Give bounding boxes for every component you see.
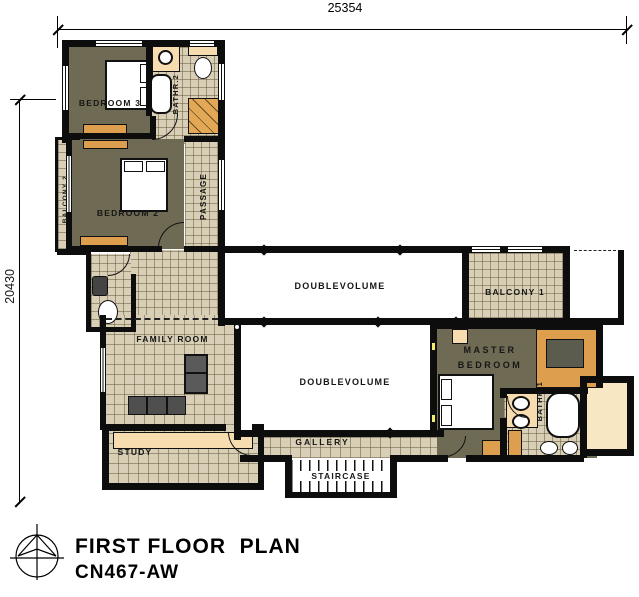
room-label-study: STUDY (100, 447, 170, 457)
linen-cupboard-icon (508, 430, 522, 456)
window-icon (219, 64, 224, 100)
room-label-balcony2-text: BALCONY 2 (62, 175, 69, 223)
room-label-passage-text: PASSAGE (199, 173, 208, 220)
door-knob-icon (234, 324, 240, 330)
sofa-icon (128, 396, 186, 415)
shower-icon (188, 98, 220, 134)
wall-segment (466, 455, 506, 462)
wall-segment (627, 376, 634, 456)
wall-segment (563, 246, 570, 320)
window-icon (96, 41, 142, 46)
pillow-icon (124, 161, 143, 172)
closet-icon (452, 329, 468, 344)
plan-code: CN467-AW (75, 562, 179, 584)
wall-segment (462, 246, 469, 320)
room-label-bathr1: BATHR.1 (532, 372, 546, 430)
wall-segment (580, 376, 634, 383)
room-label-staircase: STAIRCASE (298, 471, 384, 481)
dimension-extension (10, 99, 56, 100)
dimension-line-left (19, 99, 20, 503)
window-icon (472, 247, 500, 252)
fireplace-icon (184, 354, 208, 394)
room-label-bathr2: BATHR.2 (168, 58, 182, 130)
dimension-top-value: 25354 (305, 1, 385, 15)
wall-segment (580, 382, 587, 458)
balcony-rail (55, 137, 80, 140)
room-label-master-line2: BEDROOM (440, 360, 540, 370)
wc-basin-icon (92, 276, 108, 296)
north-arrow-compass-icon (8, 522, 66, 582)
wall-segment (86, 252, 91, 332)
pillow-icon (441, 405, 452, 426)
pillow-icon (441, 379, 452, 400)
balcony1-floor (466, 253, 566, 318)
dimension-left-text: 20430 (3, 269, 17, 304)
wall-segment (86, 327, 136, 332)
toilet-icon (540, 441, 558, 455)
wardrobe-icon (83, 140, 128, 149)
wardrobe-inset (546, 339, 584, 368)
fireplace-divider (186, 372, 206, 374)
sofa-seat-line (166, 397, 168, 414)
wall-segment (258, 424, 264, 490)
room-label-passage: PASSAGE (196, 156, 210, 236)
bathtub-icon (546, 392, 580, 438)
sofa-seat-line (146, 397, 148, 414)
open-area-floor (570, 252, 618, 318)
open-edge-dashed (106, 318, 218, 320)
room-label-balcony2: BALCONY 2 (57, 160, 73, 238)
room-label-double-volume-lower: DOUBLEVOLUME (265, 377, 425, 387)
toilet-icon (194, 57, 212, 79)
wall-segment (285, 492, 397, 498)
plan-title: FIRST FLOOR PLAN (75, 535, 301, 559)
room-label-bedroom3: BEDROOM 3 (68, 98, 152, 108)
window-light-icon (431, 342, 436, 351)
room-label-bathr1-text: BATHR.1 (535, 381, 544, 421)
wardrobe-icon (80, 236, 128, 246)
room-label-master-line1: MASTER (440, 345, 540, 355)
wall-segment (218, 246, 468, 253)
wall-segment (234, 318, 241, 440)
terrace-floor (586, 382, 628, 450)
toilet-shelf (188, 46, 218, 56)
pillow-icon (146, 161, 165, 172)
wall-segment (102, 424, 226, 431)
wall-segment (184, 246, 222, 252)
wall-segment (234, 430, 444, 437)
dimension-extension (626, 16, 627, 44)
bidet-icon (562, 441, 578, 455)
dimension-left-value: 20430 (1, 248, 18, 324)
open-edge-dashed (574, 250, 616, 251)
wall-segment (131, 274, 136, 332)
window-light-icon (431, 414, 436, 423)
room-label-balcony1: BALCONY 1 (465, 287, 565, 297)
family-room-floor (104, 315, 240, 435)
wall-segment (218, 253, 225, 326)
window-icon (101, 348, 105, 392)
room-label-bathr2-text: BATHR.2 (171, 74, 180, 114)
wall-segment (184, 136, 222, 142)
room-label-bedroom2: BEDROOM 2 (78, 208, 178, 218)
dimension-line-top (57, 29, 627, 30)
window-icon (219, 160, 224, 210)
window-icon (190, 41, 214, 46)
wall-segment (102, 483, 264, 490)
room-label-gallery: GALLERY (275, 437, 370, 447)
wall-segment (618, 250, 624, 320)
room-label-double-volume-upper: DOUBLEVOLUME (260, 281, 420, 291)
wall-segment (102, 424, 109, 490)
room-label-family-room: FAMILY ROOM (115, 334, 230, 344)
wall-segment (580, 449, 634, 456)
window-icon (508, 247, 542, 252)
dimension-extension (57, 16, 58, 48)
floor-plan-canvas: BEDROOM 3 BATHR.2 BALCONY 2 BEDROOM 2 PA… (0, 0, 639, 597)
wall-segment (506, 455, 584, 462)
